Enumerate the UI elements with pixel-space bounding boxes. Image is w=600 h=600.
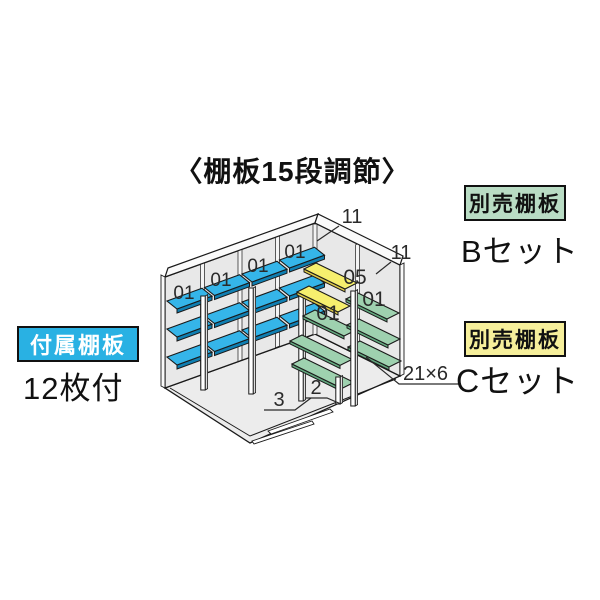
blue-shelf-label-4: 01 xyxy=(284,242,305,263)
blue-shelf-label-2: 01 xyxy=(210,270,231,291)
green-qty-label: 21×6 xyxy=(403,363,448,385)
yellow-shelf-label: 05 xyxy=(343,266,366,289)
tall-post-label: 3 xyxy=(273,389,284,411)
caption-set-c: Cセット xyxy=(456,356,579,402)
tag-set-b: 別売棚板 xyxy=(464,185,566,221)
post xyxy=(249,288,253,394)
right-wall-edge-strip xyxy=(400,263,404,376)
green-shelf-label-near: 01 xyxy=(316,302,339,325)
wall-top-side-label: 11 xyxy=(391,242,412,264)
shed-shelf-diagram: 01 01 01 01 05 01 01 11 11 3 2 21×6 xyxy=(0,0,600,600)
caption-set-b: Bセット xyxy=(461,226,579,271)
diagram-title: 〈棚板15段調節〉 xyxy=(160,150,425,190)
product-illustration: 01 01 01 01 05 01 01 11 11 3 2 21×6 〈棚板1… xyxy=(0,0,600,600)
post xyxy=(201,296,205,390)
caption-included-shelves: 12枚付 xyxy=(23,363,123,408)
post xyxy=(351,291,355,406)
short-post xyxy=(336,377,340,404)
left-wall-edge-strip xyxy=(161,275,165,388)
green-shelf-label-far: 01 xyxy=(362,288,385,311)
tag-included-shelves: 付属棚板 xyxy=(17,326,139,362)
blue-shelf-label-3: 01 xyxy=(247,256,268,277)
tag-set-c: 別売棚板 xyxy=(464,321,566,357)
blue-shelf-label-1: 01 xyxy=(173,283,194,304)
short-post-label: 2 xyxy=(310,377,321,399)
wall-top-back-label: 11 xyxy=(342,206,363,228)
